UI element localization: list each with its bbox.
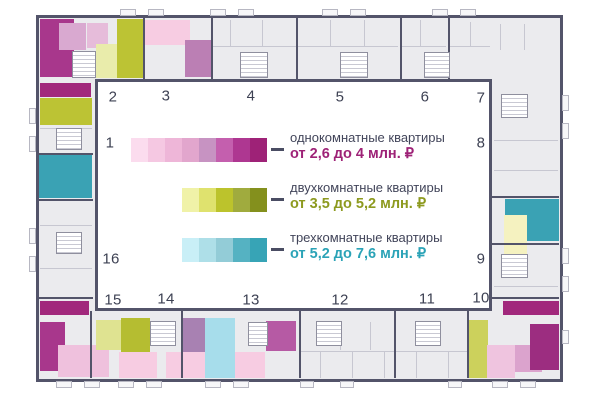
legend-dash xyxy=(271,198,284,201)
color-swatch xyxy=(233,238,250,262)
color-swatch xyxy=(216,238,233,262)
color-swatch xyxy=(148,138,165,162)
two-room-label: двухкомнатные квартиры xyxy=(290,180,443,196)
color-swatch xyxy=(216,138,233,162)
color-swatch xyxy=(199,238,216,262)
legend-item-one-room: однокомнатные квартиры от 2,6 до 4 млн. … xyxy=(0,0,600,400)
color-swatch xyxy=(182,138,199,162)
one-room-label: однокомнатные квартиры xyxy=(290,130,445,146)
legend: однокомнатные квартиры от 2,6 до 4 млн. … xyxy=(0,0,600,400)
legend-dash xyxy=(271,148,284,151)
legend-item-three-room: трехкомнатные квартиры от 5,2 до 7,6 млн… xyxy=(0,0,600,400)
three-room-swatch-strip xyxy=(182,238,267,262)
three-room-price: от 5,2 до 7,6 млн. ₽ xyxy=(290,246,442,263)
color-swatch xyxy=(233,188,250,212)
legend-text-three-room: трехкомнатные квартиры от 5,2 до 7,6 млн… xyxy=(290,230,442,263)
two-room-price: от 3,5 до 5,2 млн. ₽ xyxy=(290,196,443,213)
color-swatch xyxy=(250,188,267,212)
three-room-label: трехкомнатные квартиры xyxy=(290,230,442,246)
legend-text-one-room: однокомнатные квартиры от 2,6 до 4 млн. … xyxy=(290,130,445,163)
color-swatch xyxy=(216,188,233,212)
color-swatch xyxy=(233,138,250,162)
one-room-price: от 2,6 до 4 млн. ₽ xyxy=(290,146,445,163)
legend-dash xyxy=(271,248,284,251)
color-swatch xyxy=(182,238,199,262)
color-swatch xyxy=(199,188,216,212)
color-swatch xyxy=(250,238,267,262)
legend-item-two-room: двухкомнатные квартиры от 3,5 до 5,2 млн… xyxy=(0,0,600,400)
one-room-swatch-strip xyxy=(131,138,267,162)
color-swatch xyxy=(182,188,199,212)
color-swatch xyxy=(165,138,182,162)
two-room-swatch-strip xyxy=(182,188,267,212)
color-swatch xyxy=(131,138,148,162)
floor-plan-infographic: 12345678910111213141516 однокомнатные кв… xyxy=(0,0,600,400)
legend-text-two-room: двухкомнатные квартиры от 3,5 до 5,2 млн… xyxy=(290,180,443,213)
color-swatch xyxy=(199,138,216,162)
color-swatch xyxy=(250,138,267,162)
